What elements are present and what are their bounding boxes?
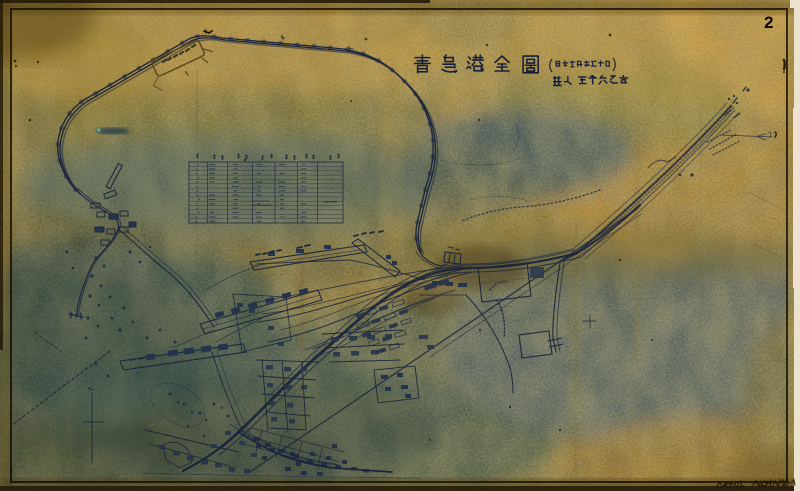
svg-text:2: 2 xyxy=(764,13,773,32)
